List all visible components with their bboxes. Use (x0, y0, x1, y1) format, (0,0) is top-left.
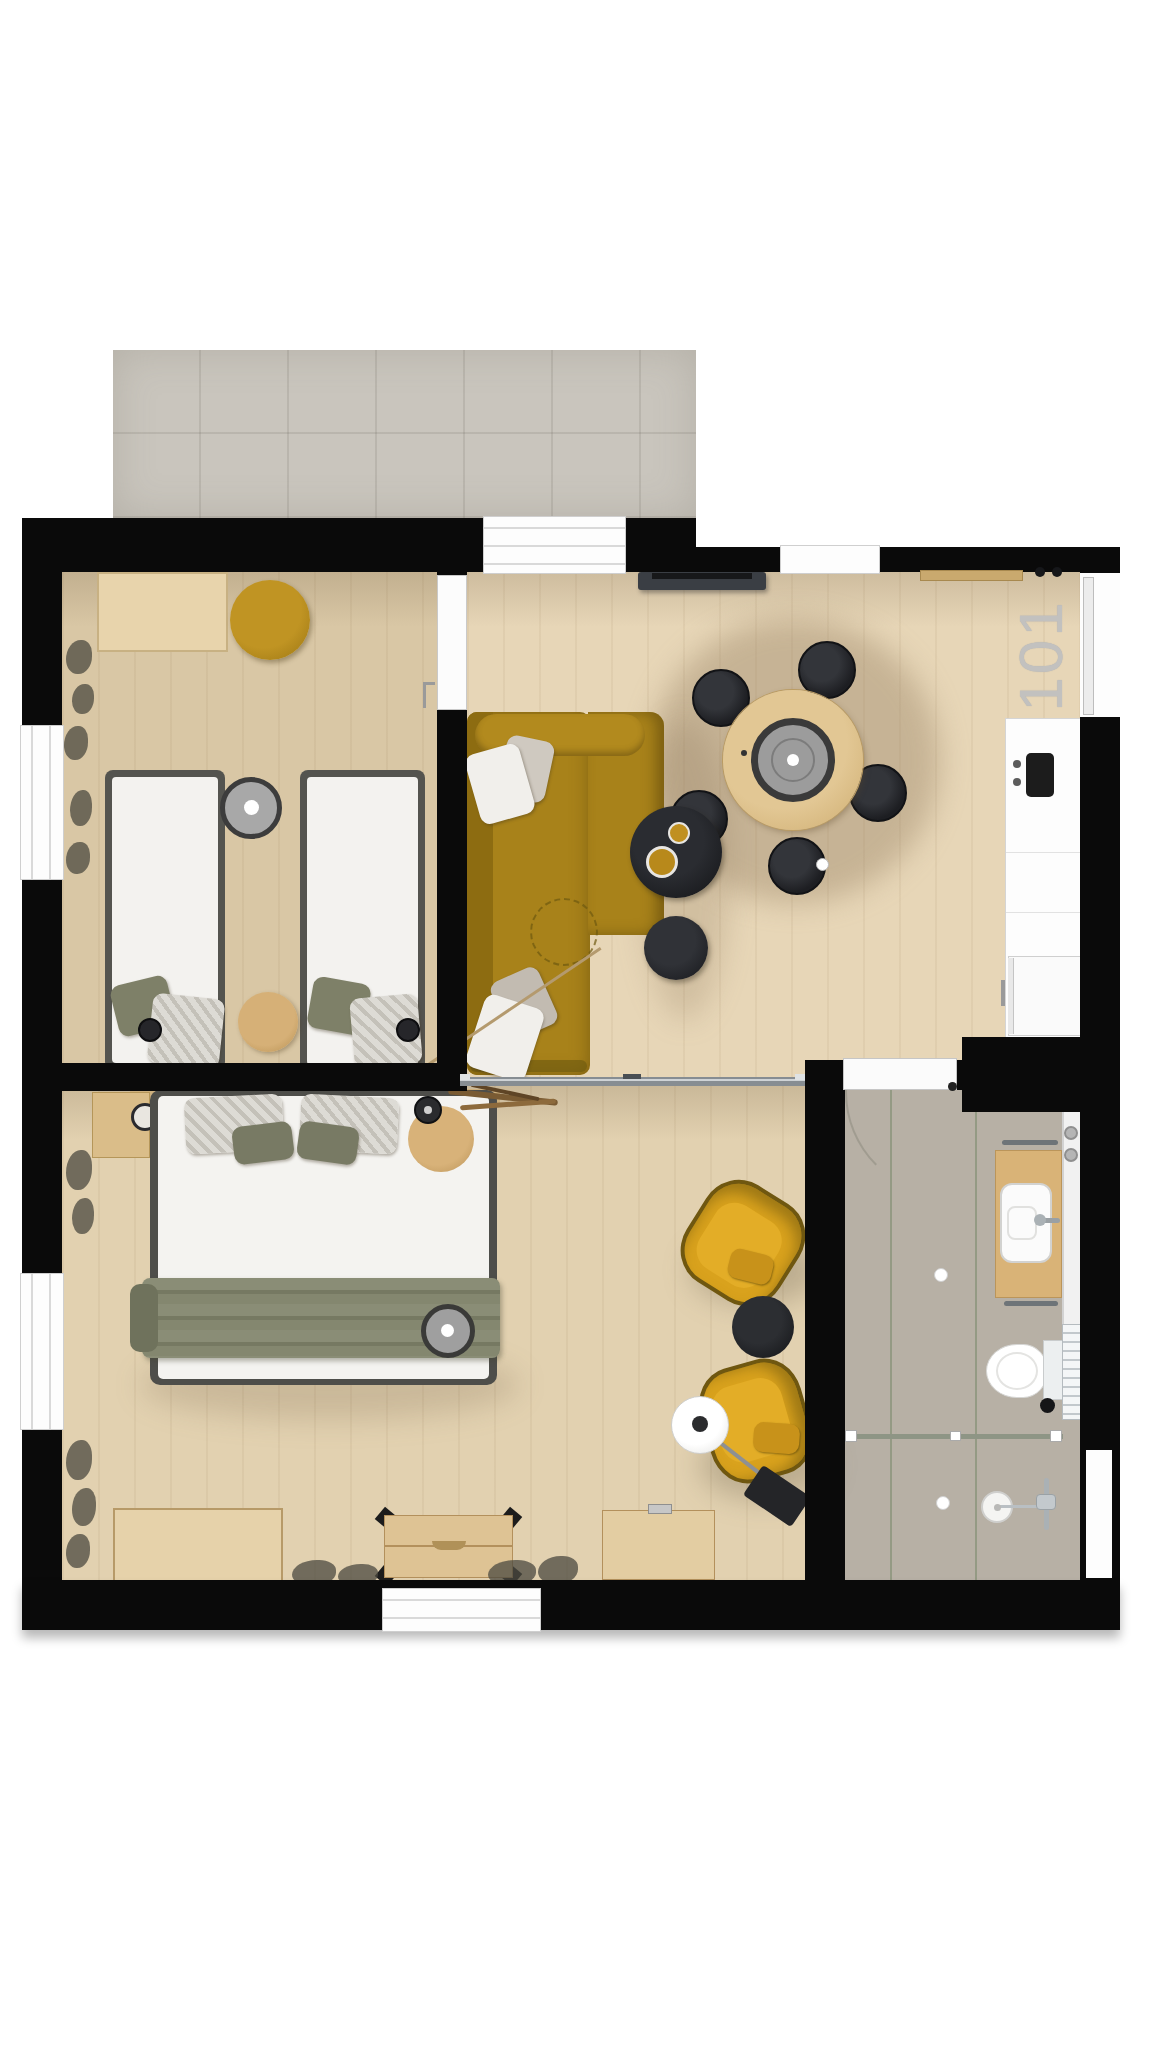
bedroom-double-window (20, 1273, 64, 1430)
bathroom-door-leaf (843, 1058, 957, 1090)
reading-lamp (138, 1018, 162, 1042)
lamp-center (244, 800, 259, 815)
storage-chest-c (602, 1510, 715, 1580)
living-window-top (780, 545, 880, 574)
door-hinge-icon (1035, 567, 1045, 577)
mustard-pouf (230, 580, 310, 660)
bedroom-double-window-bottom (382, 1588, 541, 1632)
wall-bedrooms-divider (22, 1063, 467, 1091)
shower-drain-center (994, 1504, 1001, 1511)
lamp-center (441, 1324, 454, 1337)
partition-end-cap (795, 1074, 805, 1080)
table-decor-dot (741, 750, 747, 756)
chest-handle (648, 1504, 672, 1514)
balcony-terrace (113, 350, 696, 518)
partition-end-cap (460, 1074, 470, 1080)
dining-chair (798, 641, 856, 699)
toiletries (1064, 1148, 1078, 1162)
cooktop-knob (1013, 778, 1021, 786)
desk (97, 572, 228, 652)
balcony-sliding-door (483, 516, 626, 574)
coffee-table-small (644, 916, 708, 980)
mustard-bowl (668, 822, 690, 844)
olive-blanket-bunch (130, 1284, 158, 1352)
wall-bottom (22, 1580, 1120, 1630)
glass-handle-icon (950, 1431, 961, 1441)
room-number-label: 101 (980, 600, 1100, 710)
toilet-tank (1043, 1340, 1063, 1400)
lazy-susan-center (787, 754, 799, 766)
door-hinge-icon (1052, 567, 1062, 577)
table-lamp-dot (424, 1106, 432, 1114)
floor-plan: 101 (0, 0, 1158, 2048)
glass-handle-icon (845, 1430, 857, 1442)
kitchen-counter-line (1006, 912, 1082, 913)
ceiling-spotlight (936, 1496, 950, 1510)
toiletries (1064, 1126, 1078, 1140)
armchair-pillow (752, 1421, 800, 1454)
entry-bench (920, 570, 1023, 581)
bedroom-twin-window (20, 725, 64, 880)
side-table-black (732, 1296, 794, 1358)
fridge-door-line (1008, 958, 1014, 1034)
faucet-icon (1034, 1214, 1046, 1226)
room-number-text: 101 (1004, 599, 1075, 711)
towel-bar (1004, 1301, 1058, 1306)
wall-bathroom-left (805, 1060, 845, 1580)
glass-partition-shine (460, 1079, 805, 1081)
wall-top-right (696, 547, 1080, 572)
partition-handle-icon (623, 1074, 641, 1079)
bedroom-twin-door-leaf (437, 575, 467, 710)
glass-handle-icon (1050, 1430, 1062, 1442)
wall-kitchen-corner (962, 1037, 1080, 1112)
wood-stool (238, 992, 298, 1052)
sink-basin-line (1007, 1206, 1037, 1240)
ceiling-spotlight (934, 1268, 948, 1282)
bathroom-wall-niche (1086, 1450, 1112, 1578)
toilet-seat-line (996, 1352, 1038, 1390)
kitchen-counter-line (1006, 852, 1082, 853)
fridge-handle (1001, 980, 1005, 1006)
floor-lamp-joint (692, 1416, 708, 1432)
cooktop-knob (1013, 760, 1021, 768)
door-hinge-icon (948, 1082, 957, 1091)
fridge-cabinet (1008, 956, 1082, 1036)
coffee-table-large (630, 806, 722, 898)
door-handle-icon (423, 682, 426, 708)
toilet-valve (1040, 1398, 1055, 1413)
bathroom-grout-line (975, 1090, 977, 1580)
chest-handle-notch (432, 1541, 466, 1550)
mustard-bowl (646, 846, 678, 878)
olive-pillow (296, 1120, 361, 1166)
towel-bar (1002, 1140, 1058, 1145)
shower-head-icon (1036, 1494, 1056, 1510)
tv-screen (652, 573, 752, 579)
reading-lamp (396, 1018, 420, 1042)
cooktop (1026, 753, 1054, 797)
olive-pillow (231, 1120, 295, 1165)
salt-shaker (816, 858, 829, 871)
